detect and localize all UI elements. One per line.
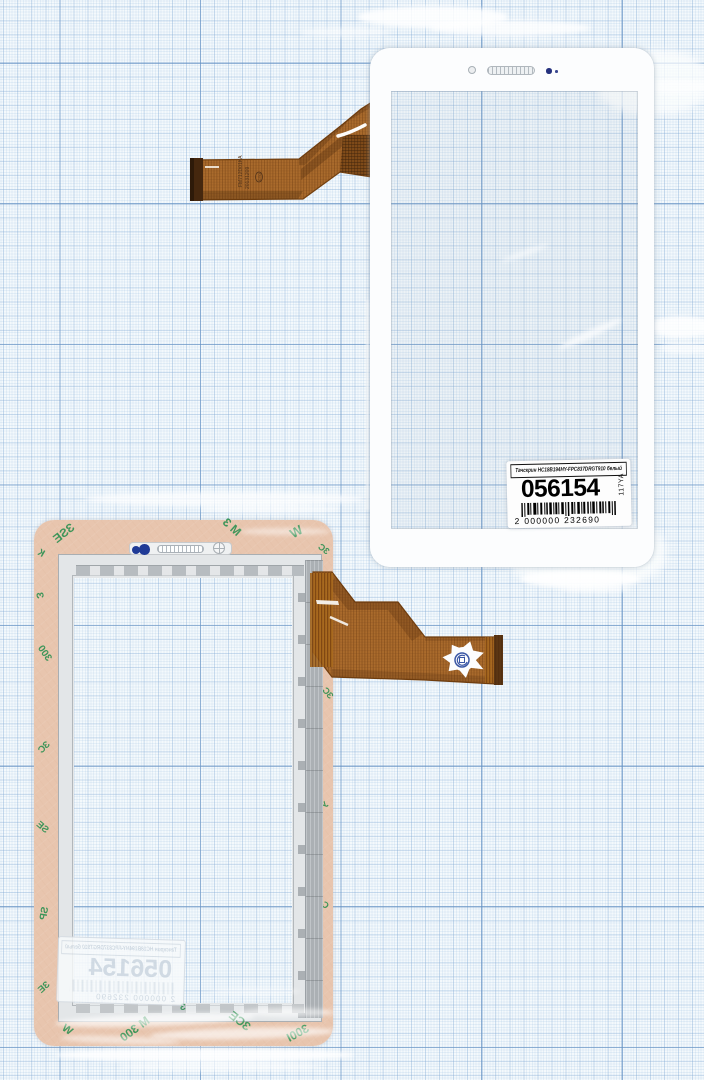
svg-text:20131209: 20131209 bbox=[245, 167, 251, 189]
svg-text:CTD: CTD bbox=[257, 173, 262, 181]
svg-text:FM712D01KA: FM712D01KA bbox=[238, 155, 244, 187]
